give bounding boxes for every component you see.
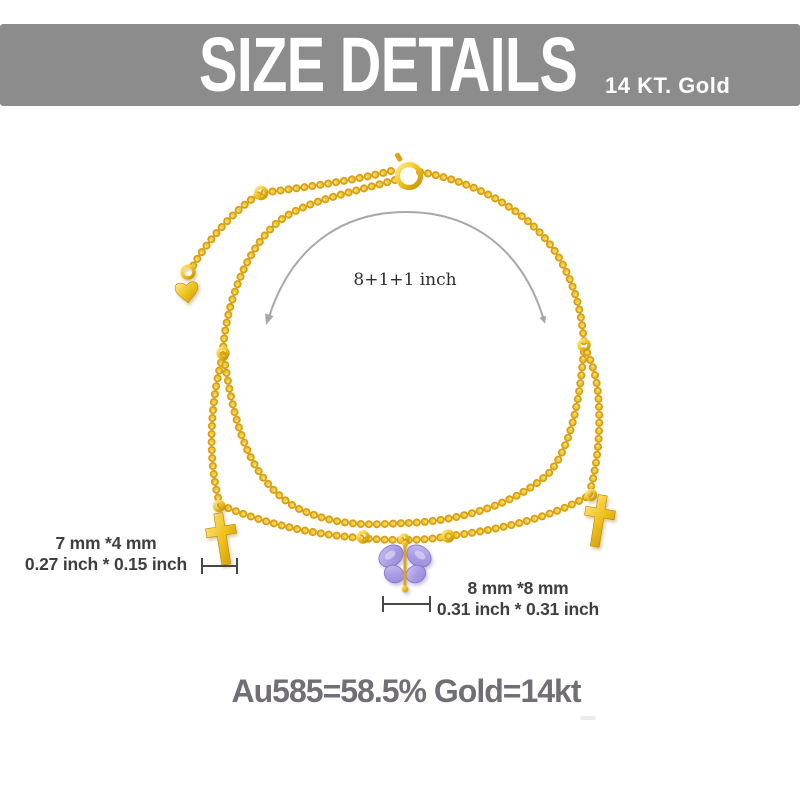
length-label: 8+1+1 inch (295, 270, 515, 290)
size-bracket-butterfly (383, 596, 430, 612)
butterfly-size-inch: 0.31 inch * 0.31 inch (428, 599, 608, 620)
butterfly-size-mm: 8 mm *8 mm (428, 578, 608, 599)
cross-size-mm: 7 mm *4 mm (18, 533, 194, 554)
size-bracket-cross (202, 558, 237, 574)
cross-size-label: 7 mm *4 mm 0.27 inch * 0.15 inch (18, 533, 194, 575)
butterfly-charm-icon (375, 535, 436, 593)
length-guide-arc (265, 212, 546, 325)
heart-charm-icon (175, 266, 200, 304)
purity-label: Au585=58.5% Gold=14kt (12, 673, 800, 710)
spring-clasp-icon (394, 152, 420, 187)
watermark-dash (580, 716, 596, 720)
butterfly-size-label: 8 mm *8 mm 0.31 inch * 0.31 inch (428, 578, 608, 620)
gold-chain (193, 171, 599, 542)
arc-arrowhead-left (265, 313, 274, 325)
cross-size-inch: 0.27 inch * 0.15 inch (18, 554, 194, 575)
product-size-image: SIZE DETAILS 14 KT. Gold (0, 0, 800, 800)
